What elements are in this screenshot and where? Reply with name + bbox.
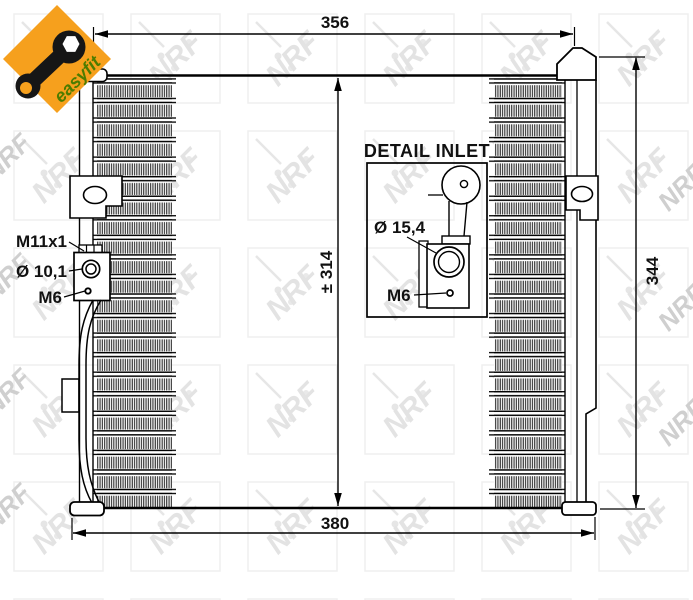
mid-left-tab: [62, 379, 79, 412]
dimension-overall-height-label: 344: [643, 256, 662, 285]
technical-drawing: NRF NRF NRF NRF NRF NRF NRF NRF: [0, 0, 693, 600]
left-bracket-slot: [84, 187, 107, 204]
thread-label: M11x1: [16, 232, 67, 251]
detail-inlet-title: DETAIL INLET: [364, 141, 490, 161]
catalog-drawing-page: NRF NRF NRF NRF NRF NRF NRF NRF: [0, 0, 693, 600]
right-fin-block: [494, 78, 562, 508]
inlet-collar: [442, 236, 470, 244]
inlet-m6-hole: [447, 290, 453, 296]
port-diameter-label: Ø 10,1: [16, 262, 67, 281]
right-bracket-slot: [572, 187, 593, 202]
dimension-width-bottom-label: 380: [321, 514, 349, 533]
bolt-label: M6: [38, 288, 62, 307]
bottom-right-foot: [562, 502, 596, 515]
m6-hole: [85, 288, 90, 293]
inlet-diameter-label: Ø 15,4: [374, 218, 426, 237]
dimension-width-top-label: 356: [321, 13, 349, 32]
bottom-left-foot: [70, 502, 104, 516]
inlet-bolt-label: M6: [387, 286, 411, 305]
dimension-core-height-label: ± 314: [317, 250, 336, 293]
port-outer-circle: [82, 260, 99, 277]
